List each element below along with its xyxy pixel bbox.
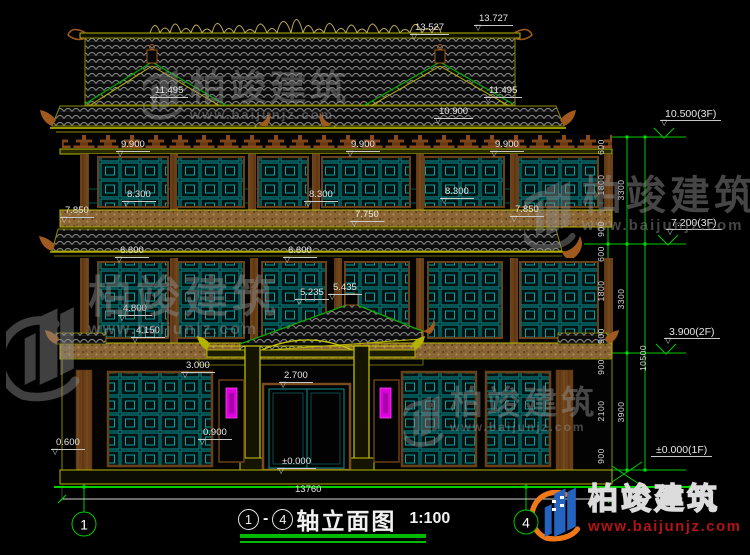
brand-logo-icon bbox=[532, 488, 578, 539]
cad-canvas: 13.527▽13.727▽11.495▽11.495▽10.900▽9.900… bbox=[0, 0, 750, 555]
title-text: 轴立面图 bbox=[296, 502, 396, 536]
main-roof bbox=[40, 20, 612, 155]
title-scale: 1:100 bbox=[409, 510, 450, 528]
title-underline-thick bbox=[240, 534, 426, 538]
brand-name: 柏竣建筑 bbox=[588, 483, 741, 517]
overall-width-dimension bbox=[58, 488, 616, 503]
title-dash: - bbox=[263, 510, 268, 528]
brand-logo: 柏竣建筑 www.baijunjz.com bbox=[588, 483, 741, 535]
third-floor bbox=[60, 154, 614, 227]
title-underline-thin bbox=[240, 541, 426, 543]
axis-circle-end: 4 bbox=[272, 509, 293, 530]
building-elevation-drawing bbox=[0, 0, 750, 555]
brand-url: www.baijunjz.com bbox=[588, 519, 741, 535]
second-floor-eave bbox=[39, 229, 582, 259]
axis-circle-start: 1 bbox=[238, 509, 259, 530]
drawing-title: 1 - 4 轴立面图 1:100 bbox=[238, 504, 450, 534]
